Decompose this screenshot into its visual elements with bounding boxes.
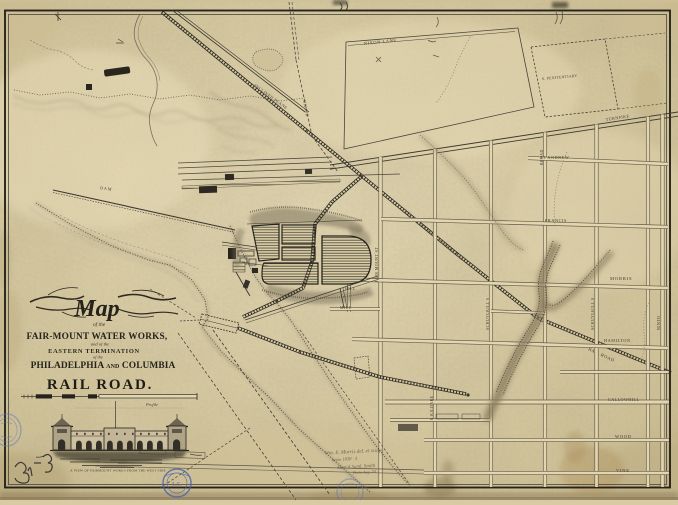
svg-text:FAIR-MOUNT WATER WORKS,: FAIR-MOUNT WATER WORKS, [27,332,168,342]
svg-text:PHILADELPHIA AND COLUMBIA: PHILADELPHIA AND COLUMBIA [31,361,176,371]
svg-text:of the: of the [93,321,106,328]
svg-text:HAMILTON: HAMILTON [604,338,631,343]
svg-text:NINTH: NINTH [657,316,661,330]
svg-text:and of the: and of the [91,342,109,347]
svg-text:MORRIS: MORRIS [610,276,632,281]
svg-text:A VIEW OF FAIRMOUNT WORKS FROM: A VIEW OF FAIRMOUNT WORKS FROM THE WEST … [70,469,166,473]
svg-text:VINE: VINE [616,468,630,473]
svg-text:of the: of the [93,355,103,360]
svg-text:WOOD: WOOD [615,434,632,439]
svg-text:Map: Map [73,296,119,322]
svg-text:ST ANDREW: ST ANDREW [540,155,569,160]
svg-text:CALLOWHILL: CALLOWHILL [608,397,639,402]
svg-text:FRANCIS: FRANCIS [545,218,567,223]
svg-text:E KILDARE: E KILDARE [430,395,434,420]
svg-text:SCHUYLKILL 8: SCHUYLKILL 8 [591,297,595,330]
svg-text:RAIL ROAD.: RAIL ROAD. [47,377,153,393]
svg-text:MILL: MILL [340,306,352,310]
svg-text:L.C.: L.C. [172,483,182,488]
svg-text:Profile: Profile [145,402,158,407]
svg-text:FAIR MOUNT ST: FAIR MOUNT ST [375,247,379,282]
svg-text:HILL: HILL [345,286,356,291]
svg-text:BROAD: BROAD [540,149,544,165]
svg-text:SCHUYLKILL 6: SCHUYLKILL 6 [486,297,490,330]
